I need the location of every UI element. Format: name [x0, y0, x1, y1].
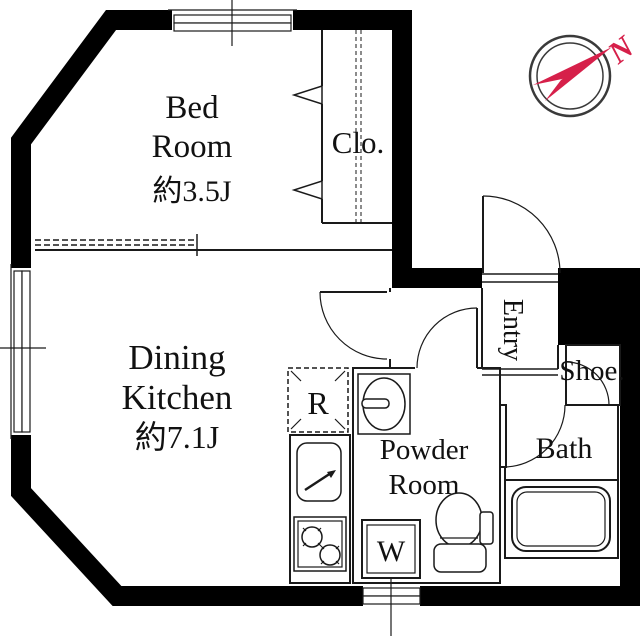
washbasin-faucet [362, 399, 389, 408]
bedroom-label-2: Room [152, 129, 233, 165]
burner-1-ticks [303, 528, 321, 546]
closet-door-arrow-bottom [294, 181, 322, 199]
bath: Bath [500, 405, 618, 558]
compass: N [530, 28, 640, 116]
bath-label: Bath [536, 432, 593, 465]
entry-label: Entry [497, 299, 528, 361]
window-left-sash-2 [22, 271, 30, 432]
entry-step-lines [482, 369, 558, 375]
powder-room: Powder Room W [353, 368, 500, 583]
bedroom-label-1: Bed [165, 90, 219, 126]
dk-label-2: Kitchen [122, 378, 233, 417]
burner-2-ticks [321, 546, 339, 564]
entrance-threshold [482, 274, 558, 282]
fridge-label: R [307, 385, 329, 421]
toilet-tank [434, 544, 486, 572]
hallway [320, 288, 477, 368]
shoe-label: Shoe. [559, 355, 624, 387]
bathtub-inner [517, 492, 605, 546]
powder-room-label-1: Powder [380, 434, 469, 466]
stove [294, 517, 346, 571]
entrance-door-swing-arc [483, 196, 560, 273]
closet-label: Clo. [332, 125, 385, 160]
kitchen: R [288, 368, 350, 583]
washer-label: W [377, 535, 406, 568]
window-left-sash-1 [14, 271, 22, 432]
wall-bottomleft-diagonal [21, 435, 363, 596]
dk-label-1: Dining [128, 338, 225, 377]
outer-walls [21, 20, 640, 596]
bath-walls [505, 405, 618, 558]
shoe-cabinet: Shoe. [559, 345, 624, 405]
wall-topleft-diagonal [21, 20, 172, 268]
dk-area-label: 約7.1J [135, 419, 219, 455]
wall-entry-corner-block [558, 268, 640, 345]
toilet-side-unit [480, 512, 493, 544]
compass-needle-lower [545, 47, 612, 101]
floor-plan: Clo. Entry Shoe. Bath [0, 0, 640, 640]
dk-door-swing-arc [320, 292, 387, 359]
compass-north-label: N [600, 28, 640, 71]
bedroom-dk-partition [35, 234, 392, 256]
toilet-bowl [436, 493, 482, 547]
washer-space: W [362, 520, 420, 578]
bathtub-outer [512, 487, 610, 551]
closet-door-arrow-top [294, 86, 322, 104]
toilet [434, 493, 493, 572]
window-top [168, 0, 297, 46]
entry: Entry [482, 196, 560, 375]
kitchen-faucet-head [327, 470, 336, 478]
compass-needle-upper [533, 47, 612, 85]
powder-door-swing-arc [417, 308, 477, 368]
kitchen-faucet [305, 473, 331, 490]
bedroom-area-label: 約3.5J [152, 175, 231, 208]
window-left [0, 264, 46, 439]
room-labels: Bed Room 約3.5J Dining Kitchen 約7.1J [122, 90, 233, 455]
closet: Clo. [294, 30, 392, 223]
